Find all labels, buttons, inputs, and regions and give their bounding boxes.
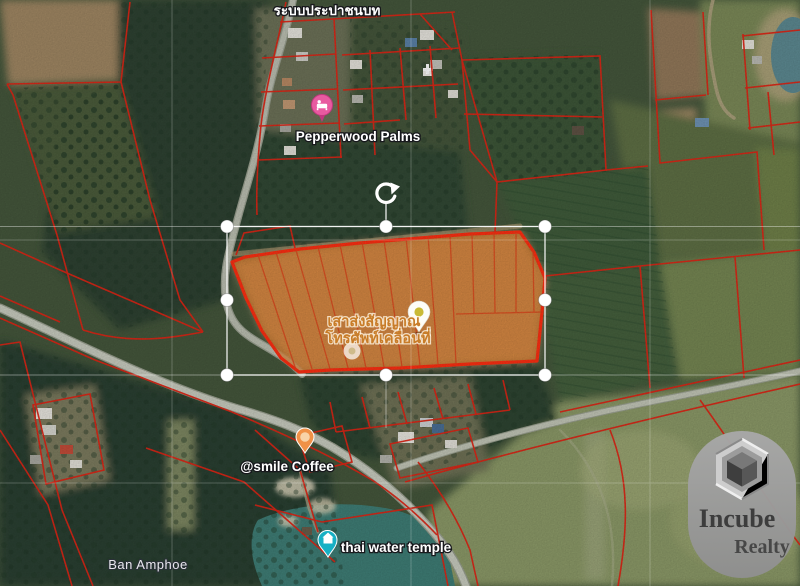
watermark-name: Incube	[699, 504, 776, 533]
temple-label: thai water temple	[341, 540, 452, 555]
water-system-label: ระบบประปาชนบท	[274, 3, 381, 18]
town-label: Ban Amphoe	[108, 557, 187, 572]
handle-middle-right[interactable]	[539, 294, 552, 307]
watermark-tagline: Realty	[734, 536, 790, 558]
satellite-map-view: ระบบประปาชนบท Pepperwood Palms เสาส่งสัญ…	[0, 0, 800, 586]
handle-top-center[interactable]	[380, 220, 393, 233]
handle-bottom-left[interactable]	[221, 369, 234, 382]
watermark-logo: Incube Realty	[688, 431, 796, 578]
satellite-grain	[0, 0, 800, 586]
lodging-label: Pepperwood Palms	[296, 129, 421, 144]
handle-top-right[interactable]	[539, 220, 552, 233]
tower-label-line1: เสาส่งสัญญาณ	[327, 314, 421, 330]
handle-bottom-right[interactable]	[539, 369, 552, 382]
handle-middle-left[interactable]	[221, 294, 234, 307]
coffee-label: @smile Coffee	[240, 459, 334, 474]
handle-top-left[interactable]	[221, 220, 234, 233]
handle-bottom-center[interactable]	[380, 369, 393, 382]
